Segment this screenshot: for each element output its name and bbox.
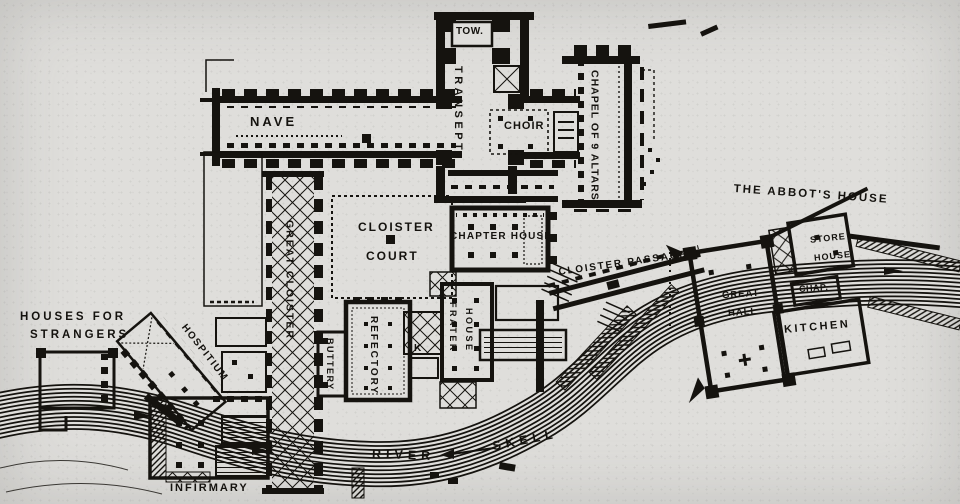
great-cloister xyxy=(262,171,324,494)
vestibule-rooms xyxy=(448,170,558,202)
chapel-of-nine-altars xyxy=(562,44,644,221)
terrain-contours xyxy=(0,460,162,494)
church-choir xyxy=(490,86,580,170)
abbey-plan-canvas: TOW. TRANSEPT NAVE CHOIR CHAPEL OF 9 ALT… xyxy=(0,0,960,504)
west-outer-court xyxy=(204,152,272,404)
ruined-wall-fragments xyxy=(642,19,718,186)
refectory xyxy=(346,296,410,400)
chapter-house xyxy=(452,208,557,270)
monks-kitchen xyxy=(404,312,442,378)
abbey-plan-drawing xyxy=(0,0,960,504)
church-nave xyxy=(200,60,462,171)
